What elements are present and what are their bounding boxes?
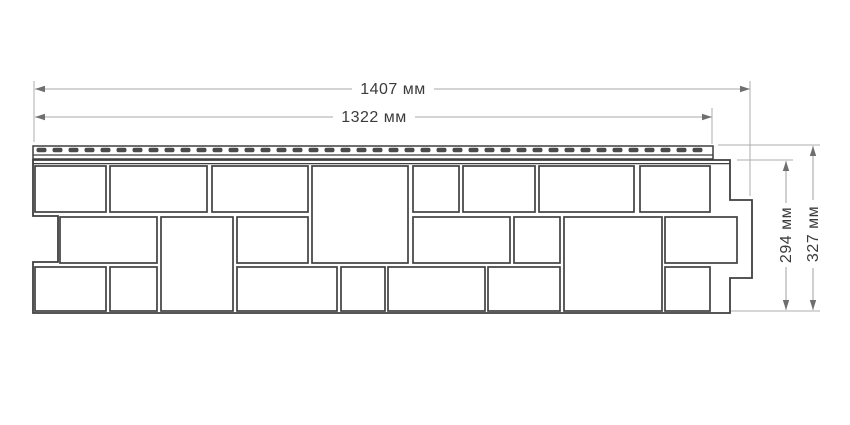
nail-slot xyxy=(597,148,607,153)
nail-slot xyxy=(373,148,383,153)
stone-block xyxy=(237,217,308,263)
stone-block xyxy=(640,166,710,212)
dim-label-total-width: 1407 мм xyxy=(360,81,426,98)
nail-slot xyxy=(501,148,511,153)
nail-slot xyxy=(117,148,127,153)
stone-block xyxy=(665,217,737,263)
nail-slot xyxy=(549,148,559,153)
nail-slot xyxy=(421,148,431,153)
stone-block xyxy=(514,217,560,263)
nail-slot xyxy=(101,148,111,153)
nail-slot xyxy=(661,148,671,153)
drawing-svg: 1407 мм 1322 мм 294 мм 327 мм xyxy=(0,0,850,425)
nail-slot xyxy=(165,148,175,153)
stone-block-large xyxy=(312,166,408,263)
nail-slot xyxy=(181,148,191,153)
nail-slot xyxy=(341,148,351,153)
arrowhead-up xyxy=(810,146,816,156)
nail-slot xyxy=(677,148,687,153)
arrowhead-down xyxy=(810,300,816,310)
arrowhead-left xyxy=(35,86,45,92)
dim-label-total-height: 327 мм xyxy=(805,206,822,262)
nail-slot xyxy=(389,148,399,153)
arrowhead-up xyxy=(783,161,789,171)
stone-block xyxy=(341,267,385,311)
stone-block-tall xyxy=(161,217,233,311)
stone-block-tall xyxy=(564,217,662,311)
dim-label-panel-height: 294 мм xyxy=(778,207,795,263)
nail-slot xyxy=(517,148,527,153)
nail-slot xyxy=(69,148,79,153)
stone-block xyxy=(413,166,459,212)
nail-slot xyxy=(629,148,639,153)
nail-slot xyxy=(197,148,207,153)
nail-slot xyxy=(469,148,479,153)
stone-block xyxy=(665,267,710,311)
nail-slot xyxy=(613,148,623,153)
nail-slot xyxy=(277,148,287,153)
nail-slot xyxy=(533,148,543,153)
nail-slot xyxy=(213,148,223,153)
stone-block xyxy=(35,166,106,212)
stone-block xyxy=(110,166,207,212)
dimension-panel-width: 1322 мм xyxy=(35,109,712,126)
nail-slot xyxy=(229,148,239,153)
nail-slot xyxy=(245,148,255,153)
nail-slot xyxy=(453,148,463,153)
stone-block xyxy=(60,217,157,263)
stone-block xyxy=(463,166,535,212)
nail-strip xyxy=(33,146,713,159)
stone-block xyxy=(35,267,106,311)
nail-slot xyxy=(53,148,63,153)
arrowhead-down xyxy=(783,300,789,310)
nail-slot xyxy=(565,148,575,153)
nail-slot xyxy=(325,148,335,153)
stone-block xyxy=(388,267,485,311)
arrowhead-right xyxy=(702,114,712,120)
stone-block xyxy=(488,267,560,311)
stone-block xyxy=(110,267,157,311)
nail-slot xyxy=(149,148,159,153)
nail-slot xyxy=(645,148,655,153)
stone-block xyxy=(539,166,634,212)
dimension-panel-height: 294 мм xyxy=(778,161,795,310)
nail-slot xyxy=(693,148,703,153)
nail-slot xyxy=(581,148,591,153)
nail-slot xyxy=(293,148,303,153)
arrowhead-right xyxy=(740,86,750,92)
dimension-total-width: 1407 мм xyxy=(35,81,750,98)
dim-label-panel-width: 1322 мм xyxy=(341,109,407,126)
nail-slot xyxy=(85,148,95,153)
nail-slot xyxy=(309,148,319,153)
nail-slot xyxy=(405,148,415,153)
stone-block xyxy=(237,267,337,311)
nail-slot xyxy=(261,148,271,153)
nail-slot xyxy=(37,148,47,153)
dimension-total-height: 327 мм xyxy=(805,146,822,310)
panel-dimension-drawing: 1407 мм 1322 мм 294 мм 327 мм xyxy=(0,0,850,425)
nail-slot xyxy=(133,148,143,153)
stone-block xyxy=(413,217,510,263)
stone-block xyxy=(212,166,308,212)
nail-slot xyxy=(357,148,367,153)
arrowhead-left xyxy=(35,114,45,120)
nail-slot xyxy=(437,148,447,153)
nail-slot xyxy=(485,148,495,153)
